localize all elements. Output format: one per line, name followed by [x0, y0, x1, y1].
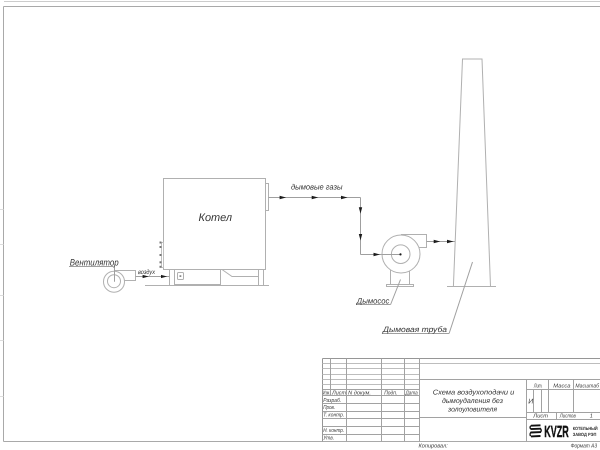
svg-text:Разраб.: Разраб.	[323, 397, 341, 404]
svg-text:воздух: воздух	[138, 269, 156, 276]
svg-text:Т. контр.: Т. контр.	[323, 413, 344, 419]
svg-text:Копировал:: Копировал:	[419, 444, 449, 450]
svg-text:Изм.: Изм.	[323, 391, 330, 397]
svg-text:золоуловителя: золоуловителя	[447, 407, 497, 414]
svg-text:Схема воздухоподачи и: Схема воздухоподачи и	[433, 389, 515, 397]
svg-text:дымовые газы: дымовые газы	[291, 183, 343, 192]
svg-text:KVZR: KVZR	[544, 423, 569, 441]
svg-text:Вентилятор: Вентилятор	[70, 257, 119, 267]
svg-text:Дымовая труба: Дымовая труба	[382, 325, 448, 334]
svg-text:Масштаб: Масштаб	[575, 383, 599, 390]
svg-text:N докум.: N докум.	[348, 390, 371, 397]
svg-text:Листов: Листов	[559, 413, 576, 419]
svg-text:дымоудаления без: дымоудаления без	[442, 397, 504, 405]
svg-text:Подп.: Подп.	[384, 390, 397, 397]
svg-text:Дата: Дата	[405, 391, 418, 397]
svg-text:ЗАВОД РЭП: ЗАВОД РЭП	[573, 432, 597, 437]
svg-text:Пров.: Пров.	[323, 405, 335, 411]
svg-text:Н. контр.: Н. контр.	[323, 428, 344, 434]
svg-text:Лист: Лист	[532, 413, 548, 419]
svg-text:Формат А3: Формат А3	[571, 443, 598, 450]
svg-text:Лит.: Лит.	[533, 384, 542, 390]
svg-text:Утв.: Утв.	[322, 436, 334, 442]
svg-text:Масса: Масса	[553, 384, 570, 390]
svg-text:КОТЕЛЬНЫЙ: КОТЕЛЬНЫЙ	[573, 425, 598, 431]
svg-text:1: 1	[590, 413, 593, 419]
svg-text:Лист: Лист	[331, 391, 346, 397]
svg-text:Дымосос: Дымосос	[356, 297, 390, 306]
svg-text:Котел: Котел	[199, 212, 233, 224]
